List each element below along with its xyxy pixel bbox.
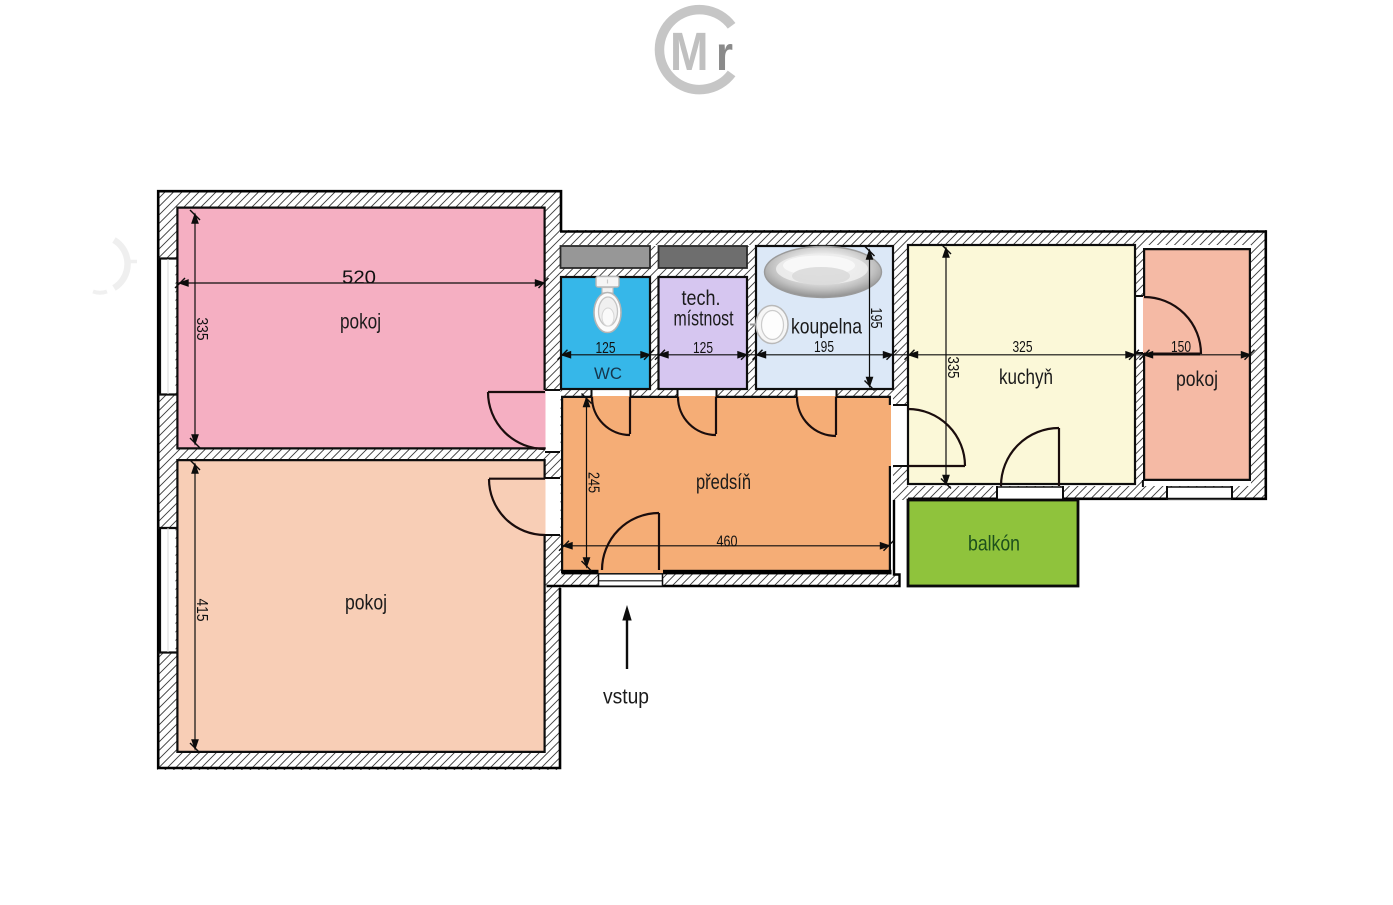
svg-text:WC: WC: [594, 364, 622, 383]
svg-text:195: 195: [867, 308, 884, 329]
svg-text:460: 460: [717, 534, 738, 551]
svg-text:r: r: [716, 28, 733, 81]
svg-text:125: 125: [596, 340, 616, 357]
svg-text:balkón: balkón: [968, 532, 1020, 556]
svg-text:520: 520: [342, 268, 376, 288]
svg-text:150: 150: [1171, 339, 1191, 356]
svg-text:335: 335: [944, 357, 961, 379]
svg-text:335: 335: [193, 318, 210, 341]
svg-text:pokoj: pokoj: [1176, 368, 1218, 391]
svg-text:325: 325: [1013, 339, 1033, 356]
svg-text:předsíň: předsíň: [696, 470, 751, 494]
svg-text:125: 125: [693, 340, 713, 357]
svg-text:koupelna: koupelna: [791, 315, 862, 339]
svg-text:pokoj: pokoj: [340, 311, 381, 334]
svg-text:kuchyň: kuchyň: [999, 366, 1053, 389]
svg-text:245: 245: [585, 472, 602, 493]
svg-text:místnost: místnost: [674, 308, 734, 331]
svg-text:pokoj: pokoj: [345, 592, 387, 615]
svg-text:415: 415: [193, 599, 210, 622]
svg-text:195: 195: [814, 339, 834, 356]
svg-text:M: M: [670, 22, 709, 82]
svg-text:vstup: vstup: [603, 686, 649, 709]
